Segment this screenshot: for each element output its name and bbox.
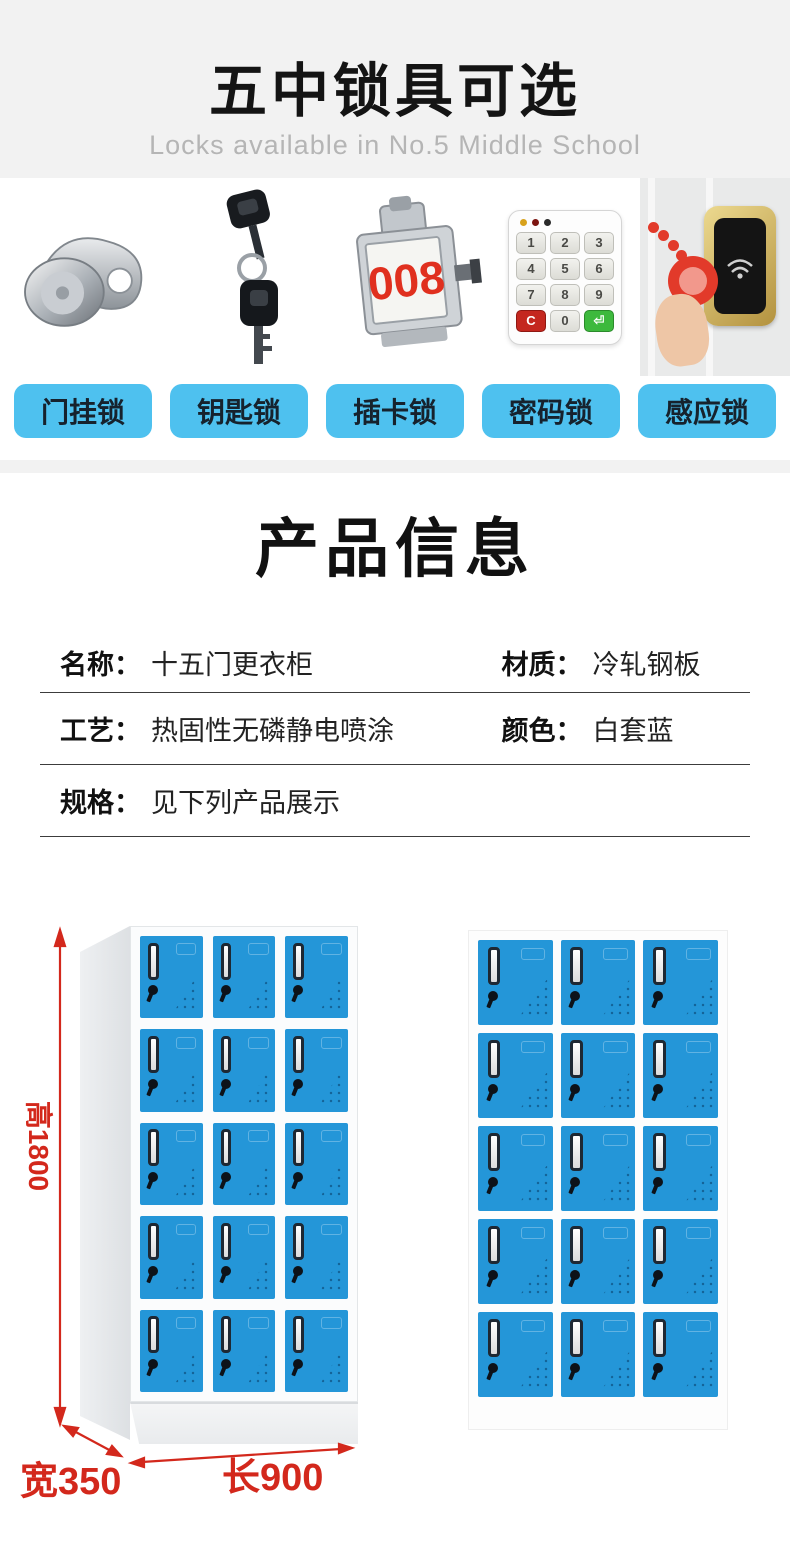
induction-lock-image	[640, 178, 790, 376]
info-cell-material: 材质： 冷轧钢板	[502, 643, 751, 682]
locker-door	[561, 1033, 636, 1118]
password-lock-image: 1 2 3 4 5 6 7 8 9 C 0 ⏎	[490, 178, 640, 376]
keypad-key: 0	[550, 310, 580, 332]
vent-holes	[518, 977, 549, 1020]
name-card-slot	[570, 1319, 583, 1357]
dimension-height-label: 高1800	[20, 1088, 60, 1204]
card-lock-number: 008	[365, 251, 447, 311]
info-value: 热固性无磷静电喷涂	[151, 709, 394, 748]
lock-chip-password: 密码锁	[482, 384, 620, 438]
name-card-slot	[570, 1040, 583, 1078]
keypad-key: 4	[516, 258, 546, 280]
locker-door	[478, 1126, 553, 1211]
info-label: 规格：	[60, 781, 141, 820]
dimension-length-label: 长900	[222, 1446, 323, 1501]
vent-holes	[518, 1070, 549, 1113]
induction-lock-icon	[640, 178, 790, 376]
vent-holes	[600, 977, 631, 1020]
page-subtitle: Locks available in No.5 Middle School	[0, 130, 790, 161]
keypad-keys: 1 2 3 4 5 6 7 8 9 C 0 ⏎	[516, 232, 614, 332]
name-card-slot	[570, 947, 583, 985]
lock-chip-padlock: 门挂锁	[14, 384, 152, 438]
locker-door	[643, 1033, 718, 1118]
name-card-slot	[653, 1133, 666, 1171]
info-cell-name: 名称： 十五门更衣柜	[40, 643, 502, 682]
lock-chip-card: 插卡锁	[326, 384, 464, 438]
product-info-table: 名称： 十五门更衣柜 材质： 冷轧钢板 工艺： 热固性无磷静电喷涂 颜色： 白套…	[40, 632, 750, 837]
lock-reader-panel	[714, 218, 766, 314]
keyhole-icon	[488, 1177, 498, 1187]
keypad-indicator-lights	[520, 219, 612, 226]
name-card-slot	[488, 1040, 501, 1078]
vent-holes	[683, 977, 714, 1020]
vent-holes	[600, 1256, 631, 1299]
info-row: 规格： 见下列产品展示	[40, 765, 750, 837]
name-card-slot	[488, 1319, 501, 1357]
locker-door	[643, 940, 718, 1025]
info-value: 十五门更衣柜	[151, 643, 313, 682]
name-card-slot	[488, 1133, 501, 1171]
keyhole-icon	[653, 1363, 663, 1373]
info-value: 见下列产品展示	[151, 781, 340, 820]
card-lock-icon: 008	[335, 192, 485, 362]
keyhole-icon	[653, 991, 663, 1001]
name-card-slot	[653, 1319, 666, 1357]
locker-door	[478, 1219, 553, 1304]
lock-chip-induction: 感应锁	[638, 384, 776, 438]
locker-door	[561, 1219, 636, 1304]
locker-door	[643, 1312, 718, 1397]
keyhole-icon	[570, 1363, 580, 1373]
vent-holes	[683, 1349, 714, 1392]
locker-door	[478, 940, 553, 1025]
keyhole-icon	[488, 991, 498, 1001]
gold-lock-body	[704, 206, 776, 326]
info-label: 名称：	[60, 643, 141, 682]
keypad-key: 5	[550, 258, 580, 280]
info-cell-spec: 规格： 见下列产品展示	[40, 781, 502, 820]
locker-door	[561, 1312, 636, 1397]
info-label: 材质：	[502, 643, 583, 682]
keyhole-icon	[488, 1363, 498, 1373]
keypad-key: 2	[550, 232, 580, 254]
vent-holes	[600, 1349, 631, 1392]
name-card-slot	[488, 1226, 501, 1264]
vent-holes	[600, 1070, 631, 1113]
keypad-key: 1	[516, 232, 546, 254]
info-value: 白套蓝	[593, 709, 674, 748]
keyhole-icon	[570, 1084, 580, 1094]
keypad-clear-key: C	[516, 310, 546, 332]
dimension-arrows	[0, 900, 420, 1520]
keyhole-icon	[488, 1270, 498, 1280]
locker-door	[478, 1033, 553, 1118]
keypad-key: 7	[516, 284, 546, 306]
locker-door	[643, 1126, 718, 1211]
name-card-slot	[653, 1226, 666, 1264]
keyhole-icon	[570, 1177, 580, 1187]
keypad-key: 9	[584, 284, 614, 306]
locker-door	[643, 1219, 718, 1304]
keyhole-icon	[653, 1270, 663, 1280]
locker-door	[478, 1312, 553, 1397]
keyhole-icon	[653, 1177, 663, 1187]
page-title: 五中锁具可选	[0, 44, 790, 128]
vent-holes	[683, 1070, 714, 1113]
keyhole-icon	[653, 1084, 663, 1094]
card-lock-image: 008	[330, 178, 490, 376]
info-cell-color: 颜色： 白套蓝	[502, 709, 751, 748]
keyhole-icon	[570, 991, 580, 1001]
info-label: 颜色：	[502, 709, 583, 748]
product-info-title: 产品信息	[0, 498, 790, 590]
name-card-slot	[570, 1226, 583, 1264]
dimension-width-label: 宽350	[20, 1450, 121, 1505]
keypad-key: 6	[584, 258, 614, 280]
info-label: 工艺：	[60, 709, 141, 748]
keypad-enter-key: ⏎	[584, 310, 614, 332]
locker-front-view	[468, 930, 728, 1430]
lock-chip-key: 钥匙锁	[170, 384, 308, 438]
lock-type-labels: 门挂锁 钥匙锁 插卡锁 密码锁 感应锁	[14, 384, 776, 438]
keyhole-icon	[570, 1270, 580, 1280]
name-card-slot	[653, 1040, 666, 1078]
name-card-slot	[653, 947, 666, 985]
locker-door	[561, 940, 636, 1025]
cam-lock-image	[0, 178, 170, 376]
keypad-key: 3	[584, 232, 614, 254]
vent-holes	[683, 1163, 714, 1206]
vent-holes	[518, 1256, 549, 1299]
lock-images-row: 008 1 2 3 4	[0, 178, 790, 376]
locker-door	[561, 1126, 636, 1211]
cam-lock-icon	[10, 202, 160, 352]
vent-holes	[518, 1349, 549, 1392]
info-row: 名称： 十五门更衣柜 材质： 冷轧钢板	[40, 632, 750, 693]
product-detail-page: 五中锁具可选 Locks available in No.5 Middle Sc…	[0, 0, 790, 1567]
keyhole-icon	[488, 1084, 498, 1094]
keypad-icon: 1 2 3 4 5 6 7 8 9 C 0 ⏎	[508, 210, 622, 345]
name-card-slot	[488, 947, 501, 985]
key-lock-image	[170, 178, 330, 376]
info-value: 冷轧钢板	[593, 643, 701, 682]
info-row: 工艺： 热固性无磷静电喷涂 颜色： 白套蓝	[40, 693, 750, 765]
keypad-key: 8	[550, 284, 580, 306]
wifi-icon	[714, 246, 766, 286]
info-cell-craft: 工艺： 热固性无磷静电喷涂	[40, 709, 502, 748]
locks-header-section: 五中锁具可选 Locks available in No.5 Middle Sc…	[0, 0, 790, 473]
vent-holes	[683, 1256, 714, 1299]
keys-icon	[190, 184, 310, 370]
vent-holes	[518, 1163, 549, 1206]
name-card-slot	[570, 1133, 583, 1171]
vent-holes	[600, 1163, 631, 1206]
